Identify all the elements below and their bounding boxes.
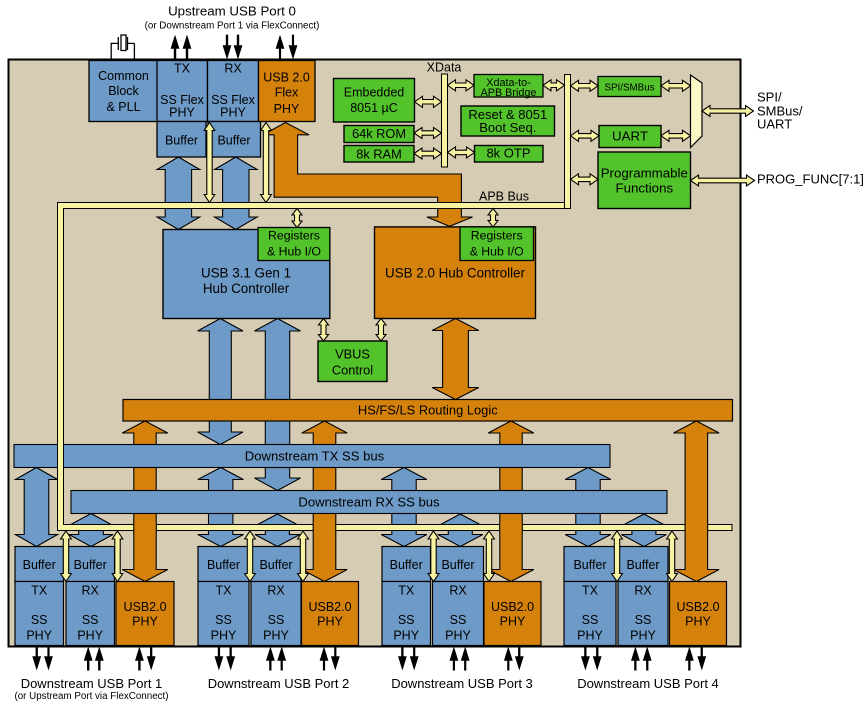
svg-text:UART: UART bbox=[757, 117, 792, 132]
svg-text:Downstream USB Port 1: Downstream USB Port 1 bbox=[21, 676, 163, 691]
svg-text:(or Upstream Port via FlexConn: (or Upstream Port via FlexConnect) bbox=[14, 691, 168, 702]
svg-text:PHY: PHY bbox=[211, 629, 237, 643]
svg-text:HS/FS/LS Routing Logic: HS/FS/LS Routing Logic bbox=[358, 403, 498, 418]
svg-text:Buffer: Buffer bbox=[573, 558, 606, 572]
svg-text:Downstream RX SS bus: Downstream RX SS bus bbox=[298, 495, 440, 510]
svg-text:USB 2.0 Hub Controller: USB 2.0 Hub Controller bbox=[385, 266, 525, 281]
svg-text:SPI/SMBus: SPI/SMBus bbox=[604, 83, 654, 94]
svg-text:SS: SS bbox=[450, 613, 467, 627]
svg-text:Buffer: Buffer bbox=[23, 558, 56, 572]
svg-text:Common: Common bbox=[98, 69, 149, 83]
svg-text:Buffer: Buffer bbox=[74, 558, 107, 572]
svg-text:Functions: Functions bbox=[615, 181, 673, 196]
svg-text:PHY: PHY bbox=[220, 106, 246, 120]
svg-text:PHY: PHY bbox=[169, 106, 195, 120]
svg-text:& Hub I/O: & Hub I/O bbox=[470, 245, 524, 259]
svg-text:Block: Block bbox=[108, 84, 139, 98]
svg-text:Buffer: Buffer bbox=[217, 134, 250, 148]
svg-text:SS: SS bbox=[215, 613, 232, 627]
svg-text:RX: RX bbox=[267, 584, 285, 598]
svg-text:Buffer: Buffer bbox=[165, 134, 198, 148]
svg-text:Embedded: Embedded bbox=[344, 85, 405, 99]
svg-text:Upstream USB Port 0: Upstream USB Port 0 bbox=[168, 4, 296, 19]
svg-text:8k OTP: 8k OTP bbox=[486, 146, 530, 161]
svg-text:Buffer: Buffer bbox=[441, 558, 474, 572]
svg-text:PHY: PHY bbox=[263, 629, 289, 643]
svg-text:64k ROM: 64k ROM bbox=[352, 126, 406, 141]
svg-text:8051 µC: 8051 µC bbox=[350, 101, 398, 115]
svg-text:XData: XData bbox=[427, 61, 462, 75]
svg-text:Registers: Registers bbox=[471, 229, 523, 243]
svg-text:PHY: PHY bbox=[445, 629, 471, 643]
svg-text:Downstream USB Port 4: Downstream USB Port 4 bbox=[577, 676, 719, 691]
svg-text:APB Bus: APB Bus bbox=[479, 190, 529, 204]
svg-text:TX: TX bbox=[582, 584, 599, 598]
svg-text:& PLL: & PLL bbox=[106, 100, 140, 114]
svg-text:SS: SS bbox=[635, 613, 652, 627]
svg-text:SS: SS bbox=[31, 613, 48, 627]
svg-text:Buffer: Buffer bbox=[626, 558, 659, 572]
svg-text:Downstream USB Port 2: Downstream USB Port 2 bbox=[208, 676, 350, 691]
svg-text:PHY: PHY bbox=[26, 629, 52, 643]
svg-text:SS: SS bbox=[582, 613, 599, 627]
svg-text:Buffer: Buffer bbox=[390, 558, 423, 572]
svg-text:RX: RX bbox=[224, 62, 242, 76]
svg-text:RX: RX bbox=[82, 584, 100, 598]
svg-text:USB2.0: USB2.0 bbox=[491, 600, 534, 614]
svg-text:Downstream TX SS bus: Downstream TX SS bus bbox=[245, 449, 385, 464]
svg-text:& Hub I/O: & Hub I/O bbox=[267, 245, 321, 259]
svg-text:RX: RX bbox=[634, 584, 652, 598]
svg-text:Downstream USB Port 3: Downstream USB Port 3 bbox=[391, 676, 533, 691]
svg-text:PHY: PHY bbox=[274, 102, 300, 116]
svg-text:Registers: Registers bbox=[268, 229, 320, 243]
svg-text:APB Bridge: APB Bridge bbox=[481, 87, 537, 99]
svg-text:(or Downstream Port 1 via Flex: (or Downstream Port 1 via FlexConnect) bbox=[145, 21, 320, 32]
svg-text:USB2.0: USB2.0 bbox=[676, 600, 719, 614]
svg-text:RX: RX bbox=[449, 584, 467, 598]
svg-text:PHY: PHY bbox=[393, 629, 419, 643]
svg-text:TX: TX bbox=[174, 62, 191, 76]
svg-text:USB 3.1 Gen 1: USB 3.1 Gen 1 bbox=[201, 266, 291, 281]
svg-text:Boot Seq.: Boot Seq. bbox=[479, 120, 536, 135]
svg-text:USB2.0: USB2.0 bbox=[123, 600, 166, 614]
svg-text:PROG_FUNC[7:1]: PROG_FUNC[7:1] bbox=[757, 172, 863, 187]
svg-text:PHY: PHY bbox=[685, 615, 711, 629]
svg-text:TX: TX bbox=[398, 584, 415, 598]
svg-text:SS: SS bbox=[82, 613, 99, 627]
svg-text:Control: Control bbox=[332, 363, 373, 378]
svg-text:Hub Controller: Hub Controller bbox=[203, 281, 290, 296]
svg-text:Programmable: Programmable bbox=[601, 166, 688, 181]
svg-text:SS: SS bbox=[398, 613, 415, 627]
svg-text:PHY: PHY bbox=[630, 629, 656, 643]
svg-text:8k RAM: 8k RAM bbox=[356, 146, 402, 161]
svg-text:Buffer: Buffer bbox=[207, 558, 240, 572]
svg-text:PHY: PHY bbox=[500, 615, 526, 629]
svg-text:SS: SS bbox=[268, 613, 285, 627]
svg-text:UART: UART bbox=[612, 129, 648, 144]
svg-text:PHY: PHY bbox=[132, 615, 158, 629]
svg-text:TX: TX bbox=[216, 584, 233, 598]
svg-text:SPI/: SPI/ bbox=[757, 90, 782, 105]
svg-text:VBUS: VBUS bbox=[335, 347, 370, 362]
svg-text:PHY: PHY bbox=[77, 629, 103, 643]
svg-text:USB 2.0: USB 2.0 bbox=[263, 71, 310, 85]
svg-text:Flex: Flex bbox=[275, 86, 299, 100]
svg-text:PHY: PHY bbox=[317, 615, 343, 629]
svg-text:Buffer: Buffer bbox=[259, 558, 292, 572]
svg-text:USB2.0: USB2.0 bbox=[308, 600, 351, 614]
svg-text:TX: TX bbox=[31, 584, 48, 598]
svg-text:PHY: PHY bbox=[577, 629, 603, 643]
